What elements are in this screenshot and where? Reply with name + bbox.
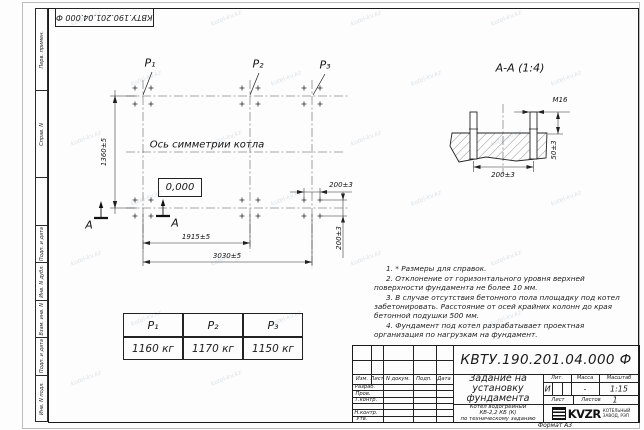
point-label-p1: P₁ (144, 57, 155, 70)
mass-header: Масса (577, 375, 594, 381)
load-table-header-p3: P₃ (243, 313, 303, 337)
load-table: P₁ P₂ P₃ 1160 кг 1170 кг 1150 кг (123, 313, 303, 360)
load-table-value-p3: 1150 кг (243, 337, 303, 360)
symmetry-axis-label: Ось симметрии котла (150, 140, 265, 151)
dim-bolt-y-200: 200±3 (335, 226, 343, 250)
title-block-doc-number: КВТУ.190.201.04.000 Ф (460, 352, 631, 368)
note-2: 2. Отклонение от горизонтального уровня … (374, 274, 626, 292)
section-letter-a-right: А (171, 217, 179, 230)
role-nkontr: Н.контр. (354, 410, 377, 416)
sheet-label: Лист (551, 397, 564, 403)
point-label-p3: P₃ (319, 59, 330, 72)
note-4: 4. Фундамент под котел разрабатывает про… (374, 321, 626, 339)
note-1: 1. * Размеры для справок. (374, 264, 626, 273)
role-prov: Пров. (355, 391, 370, 397)
role-tkontr: Т.контр. (355, 397, 377, 403)
sheets-value: 1 (612, 395, 617, 404)
lit-value: И (545, 384, 551, 393)
note-3: 3. В случае отсутствия бетонного пола пл… (374, 293, 626, 320)
rev-col-podp: Подп. (416, 376, 432, 382)
lit-header: Лит. (551, 375, 563, 381)
dim-protrusion-50: 50±3 (550, 140, 558, 159)
kvzr-logo-text: KVZR (568, 407, 601, 421)
level-mark-box: 0,000 (158, 178, 202, 197)
section-letter-a-left: А (85, 219, 93, 232)
section-view-title: А-А (1:4) (496, 62, 545, 75)
drawing-sheet: kotel-kv.kz kotel-kv.kz kotel-kv.kz kote… (0, 0, 644, 430)
mass-value: - (584, 384, 587, 393)
rev-col-list: Лист (370, 376, 383, 382)
dim-section-200: 200±3 (491, 171, 515, 179)
company-block: KVZR КОТЕЛЬНЫЙ ЗАВОД, РЭП (543, 405, 639, 422)
dim-bolt-x-200: 200±3 (329, 181, 353, 189)
scale-header: Масштаб (607, 375, 632, 381)
notes-block: 1. * Размеры для справок. 2. Отклонение … (374, 264, 626, 340)
sheets-label: Листов (581, 397, 600, 403)
load-table-value-p2: 1170 кг (183, 337, 243, 360)
rev-col-docnum: N докум. (386, 376, 410, 382)
company-name-line-2: ЗАВОД, РЭП (603, 414, 630, 419)
load-table-header-p2: P₂ (183, 313, 243, 337)
format-label: Формат А3 (470, 422, 640, 429)
role-utv: Утв. (357, 416, 368, 422)
dim-height-1360: 1360±5 (100, 138, 108, 166)
load-table-value-p1: 1160 кг (123, 337, 183, 360)
dim-span-3030: 3030±5 (213, 252, 241, 260)
drawing-title: Задание на установку фундамента (453, 374, 543, 404)
point-label-p2: P₂ (252, 58, 263, 71)
title-block: Изм. Лист N докум. Подп. Дата Разраб. Пр… (352, 345, 640, 423)
rev-col-data: Дата (437, 376, 450, 382)
scale-value: 1:15 (610, 384, 628, 393)
product-description: Котел водогрейный КВ-2,2 КБ (К) по техни… (453, 404, 543, 422)
dim-span-1915: 1915±5 (182, 233, 210, 241)
level-mark-value: 0,000 (166, 182, 195, 193)
rev-col-izm: Изм. (356, 376, 368, 382)
thread-label-m16: М16 (553, 96, 568, 104)
company-name: КОТЕЛЬНЫЙ ЗАВОД, РЭП (603, 409, 630, 419)
kvzr-logo-icon (552, 407, 566, 420)
load-table-header-p1: P₁ (123, 313, 183, 337)
role-razrab: Разраб. (355, 384, 375, 390)
